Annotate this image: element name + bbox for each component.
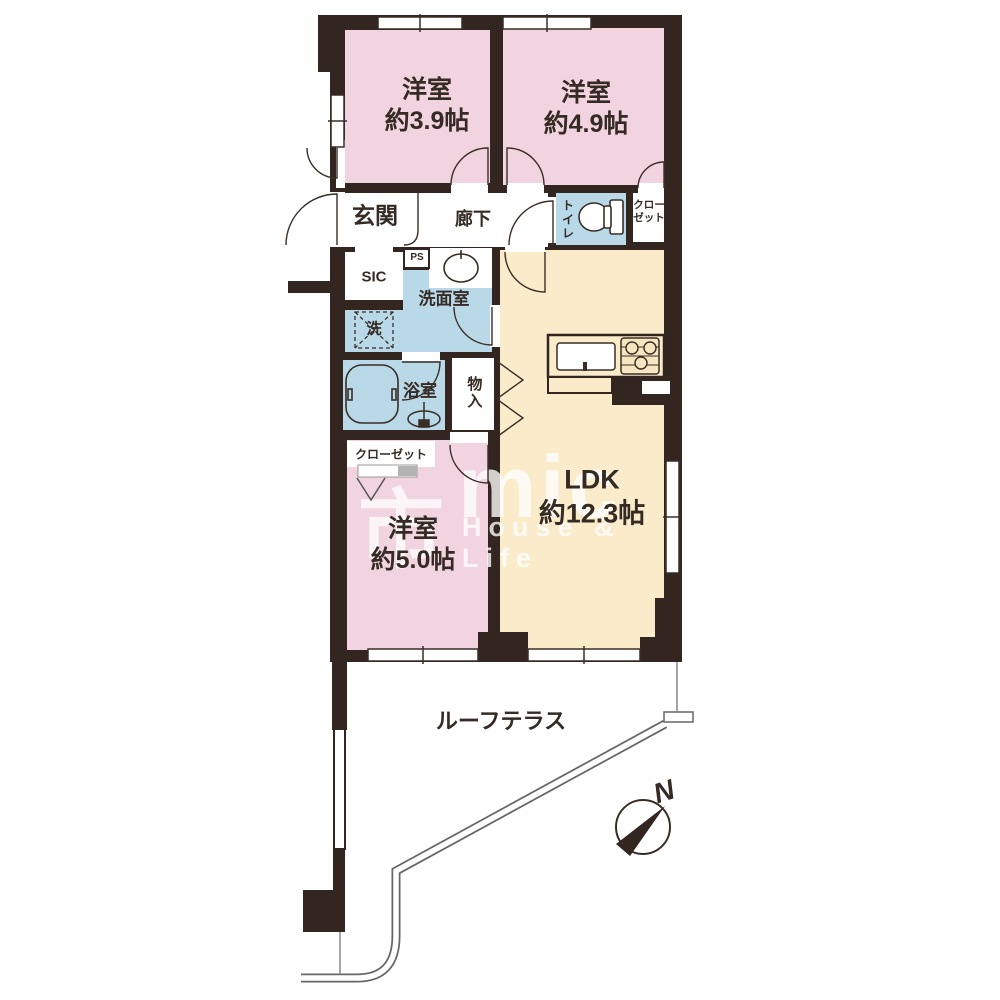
label-entrance: 玄関 (352, 202, 398, 231)
bedroom1-name: 洋室 (385, 75, 470, 106)
ldk-size: 約12.3帖 (539, 497, 646, 531)
bedroom2-size: 約4.9帖 (544, 109, 629, 140)
ldk-name: LDK (539, 463, 646, 497)
label-washroom: 洗面室 (419, 288, 470, 309)
label-washer: 洗 (366, 321, 381, 340)
wall-slot-left (336, 140, 345, 188)
wall-stub-left (288, 281, 337, 293)
label-terrace: ルーフテラス (436, 707, 566, 735)
label-closet-lower: クローゼット (355, 448, 427, 463)
closet-upper-door-gap (638, 183, 664, 193)
vanity-area (429, 248, 492, 288)
label-bedroom1: 洋室 約3.9帖 (385, 75, 470, 138)
bedroom2-name: 洋室 (544, 78, 629, 109)
floor-plan: 市 mic House & Life 洋室 約3.9帖 洋室 約4.9帖 洋室 … (0, 0, 1000, 1000)
label-closet-upper: クローゼット (629, 199, 669, 225)
north-label: N (650, 774, 679, 811)
wall-left-lower (332, 662, 347, 730)
bedroom3-door-gap (450, 432, 488, 443)
ldk-door-gap (505, 242, 545, 252)
label-hallway: 廊下 (455, 208, 491, 231)
label-ps: PS (410, 252, 423, 265)
label-sic: SIC (361, 269, 386, 288)
wall-bump-slot (642, 381, 670, 394)
bath-door-gap (402, 352, 440, 361)
bedroom2-door-gap (507, 183, 544, 193)
bedroom3-name: 洋室 (371, 514, 456, 545)
label-storage: 物入 (464, 376, 483, 410)
bedroom3-size: 約5.0帖 (371, 545, 456, 576)
bedroom1-size: 約3.9帖 (385, 106, 470, 137)
washroom-door-gap (490, 305, 500, 347)
bedroom1-door-gap (451, 183, 488, 193)
pillar-bottom-right-b (640, 637, 682, 662)
label-bedroom2: 洋室 約4.9帖 (544, 78, 629, 141)
label-ldk: LDK 約12.3帖 (539, 463, 646, 531)
room-ldk (500, 250, 664, 650)
sic-door-gap (355, 242, 393, 253)
toilet-door-gap (548, 197, 556, 243)
entrance-opening (330, 192, 345, 247)
label-bathroom: 浴室 (403, 380, 437, 401)
label-bedroom3: 洋室 約5.0帖 (371, 514, 456, 577)
label-toilet: トイレ (560, 199, 575, 241)
wall-footing-center (478, 632, 528, 662)
